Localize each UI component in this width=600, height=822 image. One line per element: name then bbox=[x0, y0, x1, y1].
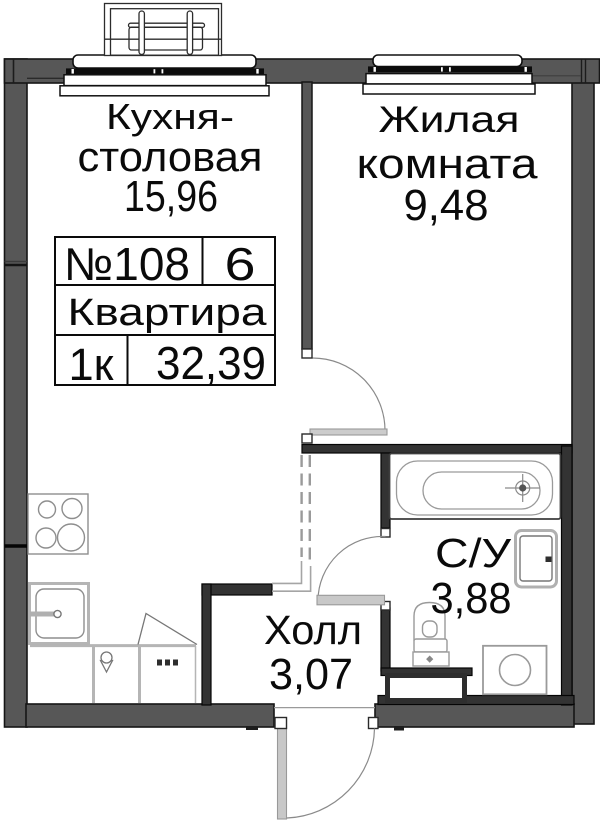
svg-text:С/У: С/У bbox=[435, 530, 512, 576]
svg-text:1к: 1к bbox=[69, 339, 114, 390]
svg-text:9,48: 9,48 bbox=[404, 181, 489, 230]
svg-text:3,88: 3,88 bbox=[431, 574, 512, 623]
svg-text:Холл: Холл bbox=[264, 607, 362, 653]
svg-text:комната: комната bbox=[357, 140, 539, 187]
svg-text:15,96: 15,96 bbox=[124, 172, 218, 221]
svg-text:№108: №108 bbox=[64, 238, 190, 290]
svg-text:32,39: 32,39 bbox=[156, 337, 266, 389]
svg-text:Квартира: Квартира bbox=[68, 292, 268, 334]
svg-text:Жилая: Жилая bbox=[379, 99, 520, 140]
svg-text:3,07: 3,07 bbox=[269, 650, 353, 699]
svg-text:Кухня-: Кухня- bbox=[106, 96, 234, 137]
svg-text:6: 6 bbox=[225, 238, 256, 290]
